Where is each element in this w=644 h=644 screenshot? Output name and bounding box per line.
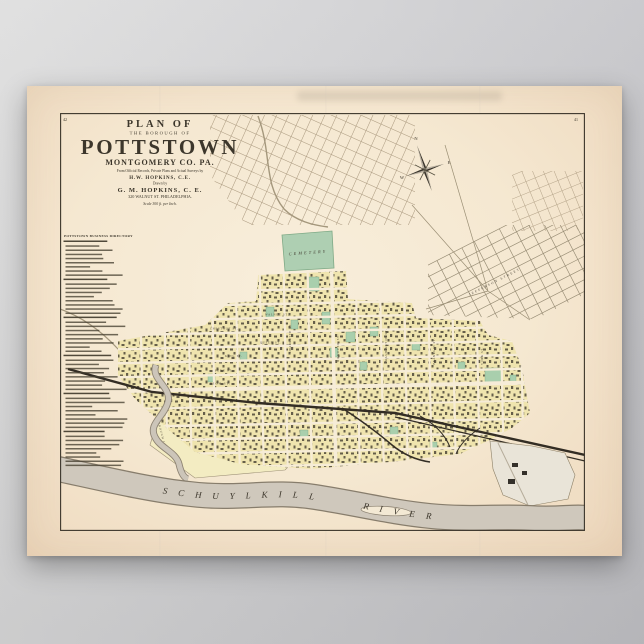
directory-header: POTTSTOWN BUSINESS DIRECTORY xyxy=(64,234,133,238)
title-scale: Scale 300 ft. per Inch. xyxy=(143,202,177,206)
title-plan-of: PLAN OF xyxy=(127,119,194,130)
street-label: PENN ST. xyxy=(215,369,233,372)
street-label: KING ST. xyxy=(225,355,243,358)
title-name: POTTSTOWN xyxy=(81,135,239,159)
title-county: MONTGOMERY CO. PA. xyxy=(105,158,214,167)
street-label: QUEEN ST. xyxy=(260,341,281,344)
street-label: WASHINGTON ST. xyxy=(385,329,388,362)
poster-top-smudge xyxy=(297,91,502,101)
street-label: YORK ST. xyxy=(481,347,484,365)
title-drawn-by: Drawn by xyxy=(153,182,167,186)
street-label: CHESTNUT ST. xyxy=(210,327,239,330)
map-poster: CEMETERY TYLER Co. BOROUGH LINE xyxy=(27,86,622,556)
street-label: FRANKLIN ST. xyxy=(433,338,436,365)
page-number-right: 41 xyxy=(574,117,578,122)
title-drafter: G. M. HOPKINS, C. E. xyxy=(118,187,203,194)
cemetery: CEMETERY xyxy=(282,231,334,271)
street-label: CHARLOTTE ST. xyxy=(289,323,292,353)
wall-background: CEMETERY TYLER Co. BOROUGH LINE xyxy=(0,0,644,644)
title-surveyor: H.W. HOPKINS, C.E. xyxy=(129,176,191,181)
page-number-left: 42 xyxy=(63,117,67,122)
street-label: WALNUT ST. xyxy=(265,313,289,316)
street-label: HANOVER ST. xyxy=(336,334,340,362)
compass-e: E xyxy=(448,160,451,165)
street-label: HIGH ST. xyxy=(210,382,231,386)
pottstown-map: CEMETERY TYLER Co. BOROUGH LINE xyxy=(60,113,585,531)
title-address: 320 WALNUT ST. PHILADELPHIA. xyxy=(128,194,192,199)
